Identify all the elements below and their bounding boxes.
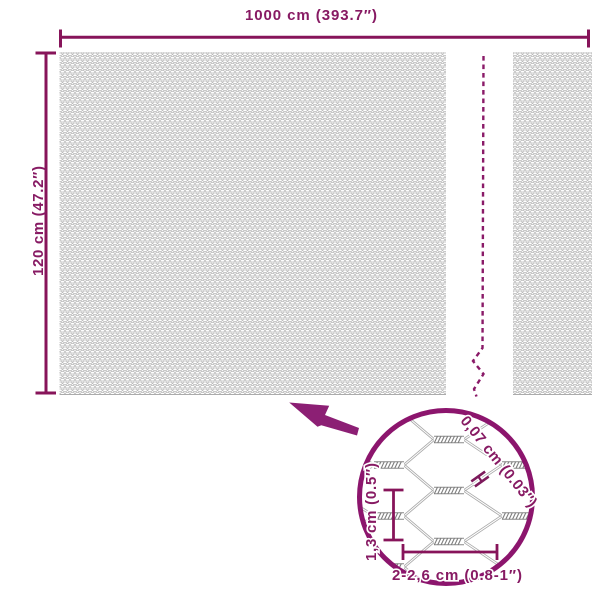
svg-text:2-2,6 cm (0.8-1″): 2-2,6 cm (0.8-1″) — [392, 567, 522, 584]
svg-text:1000 cm (393.7″): 1000 cm (393.7″) — [245, 7, 377, 24]
svg-text:120 cm (47.2″): 120 cm (47.2″) — [30, 166, 47, 276]
svg-text:1,3 cm (0.5″): 1,3 cm (0.5″) — [363, 463, 380, 561]
